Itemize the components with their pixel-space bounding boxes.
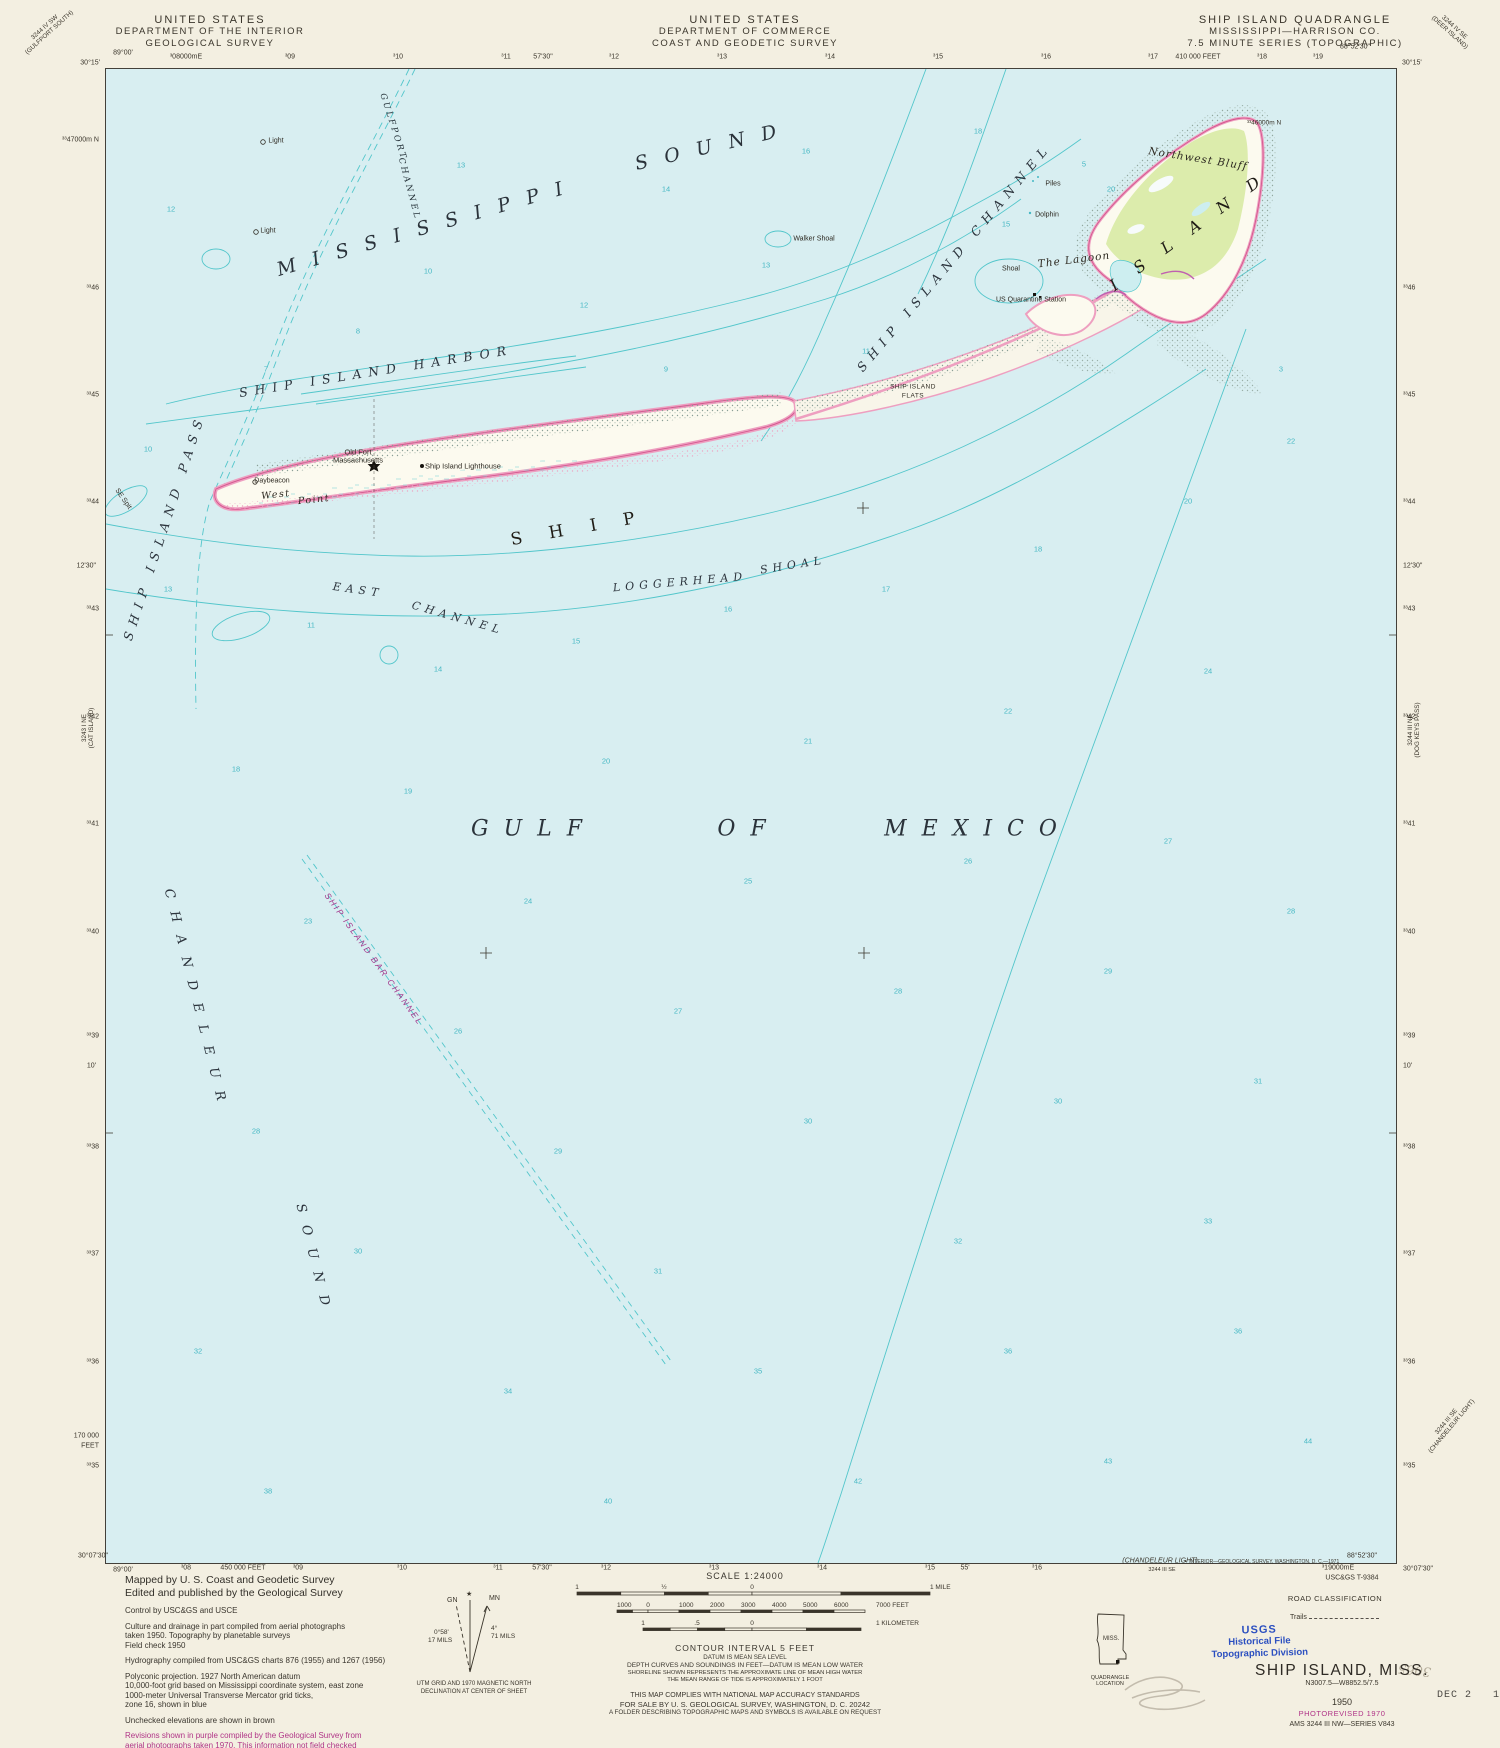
- grid-edge-label: ³³43: [87, 606, 99, 613]
- scale-bar-label: .5: [694, 1620, 700, 1627]
- grid-edge-label: ³19: [1313, 54, 1323, 61]
- credit-line: Unchecked elevations are shown in brown: [125, 1716, 455, 1726]
- header-line: UNITED STATES: [60, 14, 360, 26]
- adjoining-quad-label: 3244 III SE(CHANDELEUR LIGHT): [1422, 1394, 1476, 1455]
- depth-note: DEPTH CURVES AND SOUNDINGS IN FEET—DATUM…: [627, 1662, 863, 1669]
- grid-edge-label: ³³38: [1403, 1144, 1415, 1151]
- grid-edge-label: 57'30": [532, 1565, 551, 1572]
- shoreline-note: SHORELINE SHOWN REPRESENTS THE APPROXIMA…: [628, 1670, 863, 1676]
- scale-bar-label: 1 KILOMETER: [876, 1620, 919, 1627]
- grid-edge-label: 30°07'30": [78, 1553, 108, 1560]
- header-agency-center: UNITED STATES DEPARTMENT OF COMMERCE COA…: [595, 14, 895, 50]
- grid-edge-label: ³³35: [87, 1463, 99, 1470]
- piles-symbol: [1032, 180, 1034, 182]
- header-agency-left: UNITED STATES DEPARTMENT OF THE INTERIOR…: [60, 14, 360, 50]
- adjoining-quad-label: 3244 III NE(DOG KEYS PASS): [1407, 702, 1421, 757]
- adjoining-quad-label: 3243 I NE(CAT ISLAND): [81, 708, 95, 749]
- sheet-year: 1950: [1332, 1697, 1352, 1707]
- contour-interval-note: CONTOUR INTERVAL 5 FEET: [675, 1643, 815, 1653]
- grid-edge-label: ³16: [1032, 1565, 1042, 1572]
- sheet-coords: N3007.5—W8852.5/7.5: [1305, 1680, 1378, 1687]
- scale-bar-label: ½: [661, 1583, 667, 1591]
- quad-title: SHIP ISLAND QUADRANGLE: [1130, 14, 1460, 26]
- scale-bar-label: 0: [750, 1620, 754, 1627]
- scale-bars: 1½01 MILE1000010002000300040005000600070…: [500, 1582, 1000, 1642]
- revision-note: Revisions shown in purple compiled by th…: [125, 1731, 455, 1741]
- state-abbrev: MISS.: [1103, 1636, 1120, 1642]
- grid-edge-label: 30°07'30": [1403, 1566, 1433, 1573]
- scale-bar-label: 1: [575, 1584, 579, 1591]
- light-symbol: [254, 230, 259, 235]
- declination-caption: UTM GRID AND 1970 MAGNETIC NORTH: [364, 1680, 584, 1688]
- grid-edge-label: ³19000mE: [1322, 1565, 1354, 1572]
- grid-edge-label: 88°52'30": [1347, 1553, 1377, 1560]
- grid-edge-label: ³17: [1148, 54, 1158, 61]
- grid-edge-label: FEET: [81, 1443, 99, 1450]
- tsheet-ref: USC&GS T-9384: [1325, 1575, 1378, 1582]
- lighthouse-symbol: [420, 464, 424, 468]
- scale-title: SCALE 1:24000: [706, 1571, 784, 1581]
- grid-edge-label: ³09: [293, 1565, 303, 1572]
- interior-credit: • INTERIOR—GEOLOGICAL SURVEY, WASHINGTON…: [1185, 1559, 1339, 1565]
- grid-edge-label: ³³39: [87, 1033, 99, 1040]
- true-north-star: ★: [466, 1590, 472, 1598]
- grid-edge-label: ³³45: [1403, 392, 1415, 399]
- road-class-title: ROAD CLASSIFICATION: [1260, 1594, 1410, 1603]
- grid-edge-label: ³³43: [1403, 606, 1415, 613]
- mn-angle: 4°: [491, 1624, 498, 1632]
- dolphin-symbol: [1029, 212, 1031, 214]
- grid-edge-label: 10': [87, 1063, 96, 1070]
- scale-bar-label: 6000: [834, 1602, 849, 1609]
- grid-edge-label: ³³40: [87, 929, 99, 936]
- scale-bar-label: 1000: [679, 1602, 694, 1609]
- header-line: GEOLOGICAL SURVEY: [60, 38, 360, 50]
- grid-edge-label: 410 000 FEET: [1175, 54, 1220, 61]
- gn-angle: 0°58': [434, 1628, 449, 1636]
- road-classification: ROAD CLASSIFICATION Trails: [1260, 1594, 1410, 1621]
- grid-edge-label: 55': [960, 1565, 969, 1572]
- grid-edge-label: ³10: [397, 1565, 407, 1572]
- scale-bar-label: 4000: [772, 1602, 787, 1609]
- datum-note: DATUM IS MEAN SEA LEVEL: [703, 1654, 786, 1661]
- scale-bar-label: 0: [750, 1584, 754, 1591]
- usgs-historical-file-stamp: USGS Historical File Topographic Divisio…: [1172, 1622, 1348, 1663]
- grid-edge-label: ³³47000m N: [62, 137, 99, 144]
- quad-subtitle: MISSISSIPPI—HARRISON CO.: [1130, 26, 1460, 38]
- received-date-stamp: DEC 2 1971: [1437, 1690, 1500, 1701]
- grid-edge-label: ³13: [717, 54, 727, 61]
- grid-edge-label: ³08: [181, 1565, 191, 1572]
- grid-edge-label: 30°15': [1402, 60, 1422, 67]
- quarantine-station-symbol: [1033, 293, 1036, 296]
- grid-edge-label: ³18: [1257, 54, 1267, 61]
- grid-edge-label: 12'30": [77, 563, 96, 570]
- magnetic-north-label: MN: [489, 1595, 500, 1602]
- grid-edge-label: ³11: [493, 1565, 503, 1572]
- ship-island-east: [1026, 118, 1264, 394]
- grid-edge-label: ³³41: [1403, 821, 1415, 828]
- accuracy-note: THIS MAP COMPLIES WITH NATIONAL MAP ACCU…: [630, 1692, 859, 1699]
- sale-note: FOR SALE BY U. S. GEOLOGICAL SURVEY, WAS…: [620, 1700, 870, 1709]
- scale-bar-label: 1: [641, 1620, 645, 1627]
- scale-bar-label: 3000: [741, 1602, 756, 1609]
- scale-bar-label: 0: [646, 1602, 650, 1609]
- grid-edge-label: 450 000 FEET: [220, 1565, 265, 1572]
- grid-edge-label: 30°15': [80, 60, 100, 67]
- grid-edge-label: ³³46: [87, 285, 99, 292]
- grid-edge-label: 88°52'30": [1340, 44, 1370, 51]
- quad-location-marker: [1116, 1660, 1120, 1664]
- declination-caption: DECLINATION AT CENTER OF SHEET: [364, 1688, 584, 1696]
- grid-edge-label: ³³37: [87, 1251, 99, 1258]
- header-line: UNITED STATES: [595, 14, 895, 26]
- topo-map-sheet: { "header": { "left": ["UNITED STATES", …: [0, 0, 1500, 1748]
- grid-edge-label: 12'30": [1403, 563, 1422, 570]
- grid-edge-label: 89°00': [113, 50, 133, 57]
- grid-edge-label: ³11: [501, 54, 511, 61]
- grid-edge-label: ³15: [933, 54, 943, 61]
- grid-edge-label: 170 000: [74, 1433, 99, 1440]
- adjoining-sheet-ref-num: 3244 III SE: [1148, 1567, 1175, 1573]
- grid-edge-label: ³³38: [87, 1144, 99, 1151]
- map-canvas[interactable]: GULFPORTCHANNELMISSISSIPPISOUNDLightLigh…: [105, 68, 1397, 1564]
- scale-bar-label: 5000: [803, 1602, 818, 1609]
- grid-edge-label: ³09: [285, 54, 295, 61]
- grid-edge-label: ³³36: [1403, 1359, 1415, 1366]
- header-line: DEPARTMENT OF THE INTERIOR: [60, 26, 360, 38]
- grid-edge-label: ³³44: [87, 499, 99, 506]
- scale-bar-label: 7000 FEET: [876, 1602, 909, 1609]
- grid-edge-label: ³12: [601, 1565, 611, 1572]
- grid-edge-label: ³³40: [1403, 929, 1415, 936]
- revision-note: aerial photographs taken 1970. This info…: [125, 1741, 455, 1748]
- grid-edge-label: 10': [1403, 1063, 1412, 1070]
- gn-mils: 17 MILS: [428, 1637, 453, 1644]
- grid-edge-label: 57'30": [533, 54, 552, 61]
- grid-edge-label: ³12: [609, 54, 619, 61]
- photorevised-note: PHOTOREVISED 1970: [1299, 1709, 1386, 1718]
- ship-island-west: [215, 397, 797, 510]
- graticule-crosshair: [106, 502, 1396, 1133]
- grid-edge-label: ³10: [393, 54, 403, 61]
- grid-edge-label: ³³35: [1403, 1463, 1415, 1470]
- grid-edge-label: 89°00': [113, 1567, 133, 1574]
- quad-series: 7.5 MINUTE SERIES (TOPOGRAPHIC): [1130, 38, 1460, 50]
- grid-edge-label: ³³39: [1403, 1033, 1415, 1040]
- folder-note: A FOLDER DESCRIBING TOPOGRAPHIC MAPS AND…: [609, 1709, 881, 1716]
- ams-series: AMS 3244 III NW—SERIES V843: [1289, 1721, 1394, 1728]
- grid-edge-label: ³³44: [1403, 499, 1415, 506]
- grid-edge-label: ³14: [817, 1565, 827, 1572]
- scale-bar-label: 1000: [617, 1602, 632, 1609]
- map-graphics: [106, 69, 1396, 1563]
- light-symbol: [261, 140, 266, 145]
- grid-edge-label: ³³46: [1403, 285, 1415, 292]
- header-line: DEPARTMENT OF COMMERCE: [595, 26, 895, 38]
- grid-edge-label: ³15: [925, 1565, 935, 1572]
- grid-edge-label: ³³45: [87, 392, 99, 399]
- pencil-scribble: [1120, 1660, 1210, 1715]
- grid-edge-label: ³³36: [87, 1359, 99, 1366]
- grid-north-label: GN: [447, 1597, 458, 1604]
- tide-note: THE MEAN RANGE OF TIDE IS APPROXIMATELY …: [667, 1677, 822, 1683]
- scale-bar-label: 1 MILE: [930, 1584, 951, 1591]
- grid-edge-label: ³³41: [87, 821, 99, 828]
- scale-bar-label: 2000: [710, 1602, 725, 1609]
- grid-edge-label: ³³37: [1403, 1251, 1415, 1258]
- grid-edge-label: ³08000mE: [170, 54, 202, 61]
- header-quadrangle-title: SHIP ISLAND QUADRANGLE MISSISSIPPI—HARRI…: [1130, 14, 1460, 50]
- grid-edge-label: ³14: [825, 54, 835, 61]
- header-line: COAST AND GEODETIC SURVEY: [595, 38, 895, 50]
- sheet-title: SHIP ISLAND, MISS.: [1255, 1662, 1429, 1680]
- grid-edge-label: ³16: [1041, 54, 1051, 61]
- depth-contours: [106, 69, 1266, 1563]
- trails-label: Trails: [1290, 1614, 1307, 1621]
- trails-symbol: [1309, 1611, 1379, 1619]
